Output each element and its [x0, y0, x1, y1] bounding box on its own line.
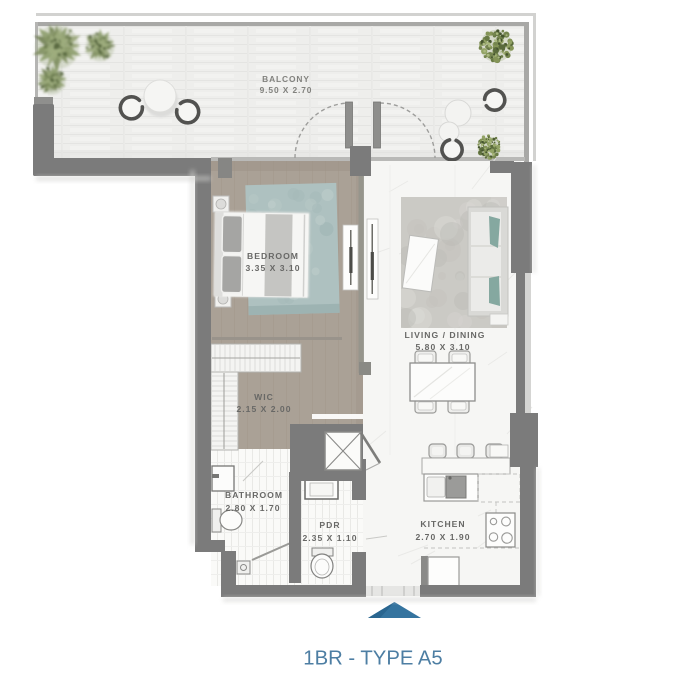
svg-text:WIC: WIC — [254, 392, 274, 402]
svg-text:LIVING / DINING: LIVING / DINING — [405, 330, 486, 340]
svg-text:2.80 X 1.70: 2.80 X 1.70 — [226, 503, 281, 513]
svg-text:2.15 X 2.00: 2.15 X 2.00 — [237, 404, 292, 414]
svg-text:3.35 X 3.10: 3.35 X 3.10 — [246, 263, 301, 273]
svg-text:BEDROOM: BEDROOM — [247, 251, 299, 261]
svg-text:2.70 X 1.90: 2.70 X 1.90 — [416, 532, 471, 542]
svg-text:9.50 X 2.70: 9.50 X 2.70 — [260, 85, 313, 95]
svg-text:2.35 X 1.10: 2.35 X 1.10 — [303, 533, 358, 543]
svg-text:BATHROOM: BATHROOM — [225, 490, 283, 500]
svg-text:1BR - TYPE A5: 1BR - TYPE A5 — [303, 648, 442, 670]
svg-text:PDR: PDR — [319, 520, 340, 530]
svg-text:KITCHEN: KITCHEN — [420, 519, 465, 529]
svg-text:BALCONY: BALCONY — [262, 74, 310, 84]
